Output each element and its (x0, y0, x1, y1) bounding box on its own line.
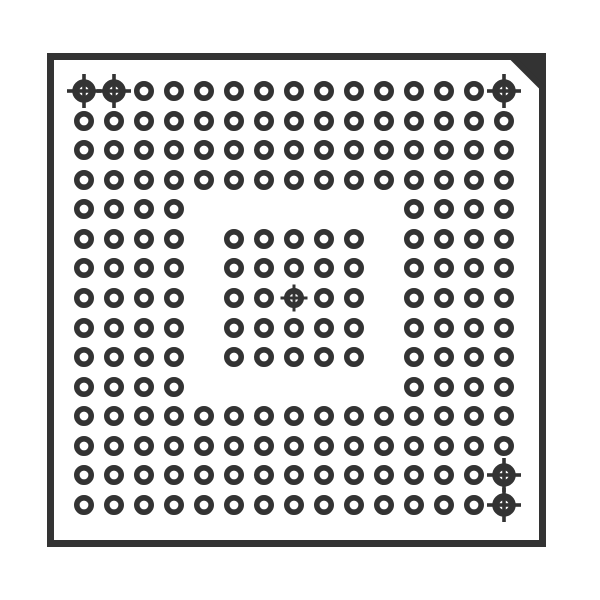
corner-fiducial-cross-v (502, 488, 506, 522)
corner-fiducial-cross-v (502, 458, 506, 492)
corner-fiducial-cross-v (82, 74, 86, 108)
corner-fiducial-cross-v (502, 74, 506, 108)
corner-fiducial-cross-v (112, 74, 116, 108)
bga-package-svg (0, 0, 600, 600)
bga-package-diagram (0, 0, 600, 600)
